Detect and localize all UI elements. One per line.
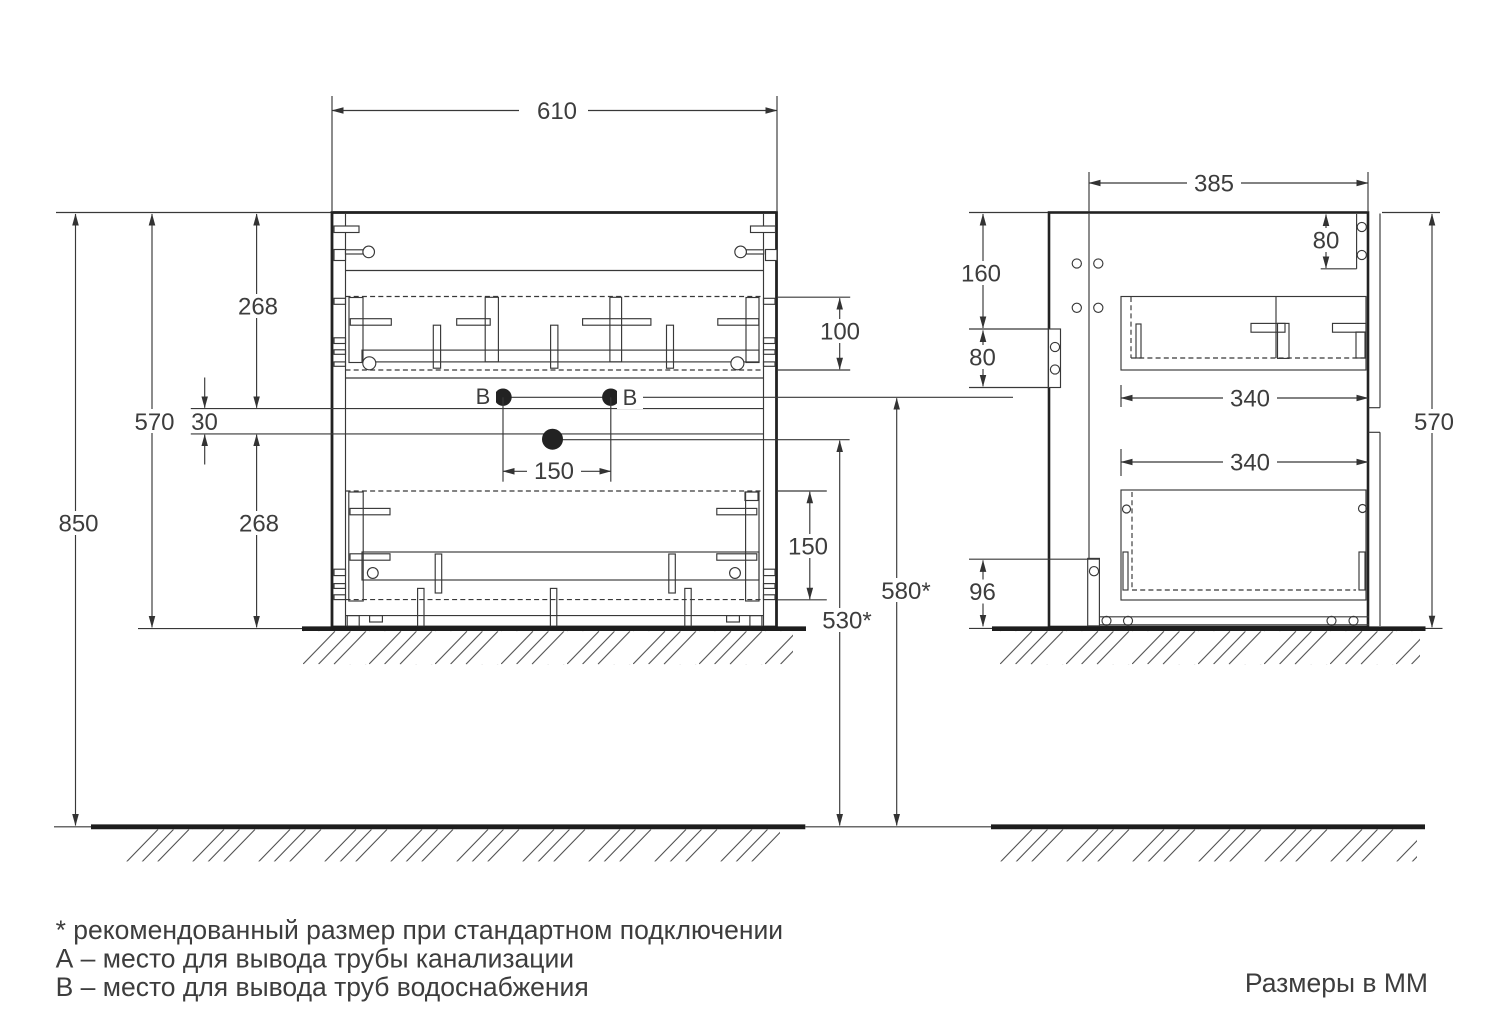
svg-text:А – место для вывода трубы кан: А – место для вывода трубы канализации — [56, 944, 574, 974]
svg-text:340: 340 — [1230, 386, 1270, 413]
svg-text:80: 80 — [969, 345, 996, 372]
svg-text:B: B — [476, 384, 491, 409]
svg-text:150: 150 — [788, 534, 828, 561]
svg-text:570: 570 — [1414, 409, 1454, 436]
svg-text:Размеры в ММ: Размеры в ММ — [1245, 968, 1428, 998]
svg-text:В – место для вывода труб водо: В – место для вывода труб водоснабжения — [56, 972, 589, 1002]
svg-text:268: 268 — [239, 511, 279, 538]
svg-text:340: 340 — [1230, 450, 1270, 477]
svg-text:150: 150 — [534, 458, 574, 485]
svg-text:268: 268 — [238, 294, 278, 321]
svg-text:570: 570 — [134, 409, 174, 436]
svg-text:610: 610 — [537, 98, 577, 125]
svg-text:* рекомендованный размер при с: * рекомендованный размер при стандартном… — [56, 915, 784, 945]
svg-text:850: 850 — [58, 511, 98, 538]
svg-text:80: 80 — [1313, 228, 1340, 255]
svg-text:96: 96 — [969, 579, 996, 606]
svg-text:B: B — [623, 385, 638, 410]
svg-text:160: 160 — [961, 261, 1001, 288]
svg-text:530*: 530* — [822, 608, 871, 635]
svg-text:30: 30 — [191, 409, 218, 436]
svg-text:580*: 580* — [881, 578, 930, 605]
svg-text:100: 100 — [820, 319, 860, 346]
svg-text:385: 385 — [1194, 171, 1234, 198]
